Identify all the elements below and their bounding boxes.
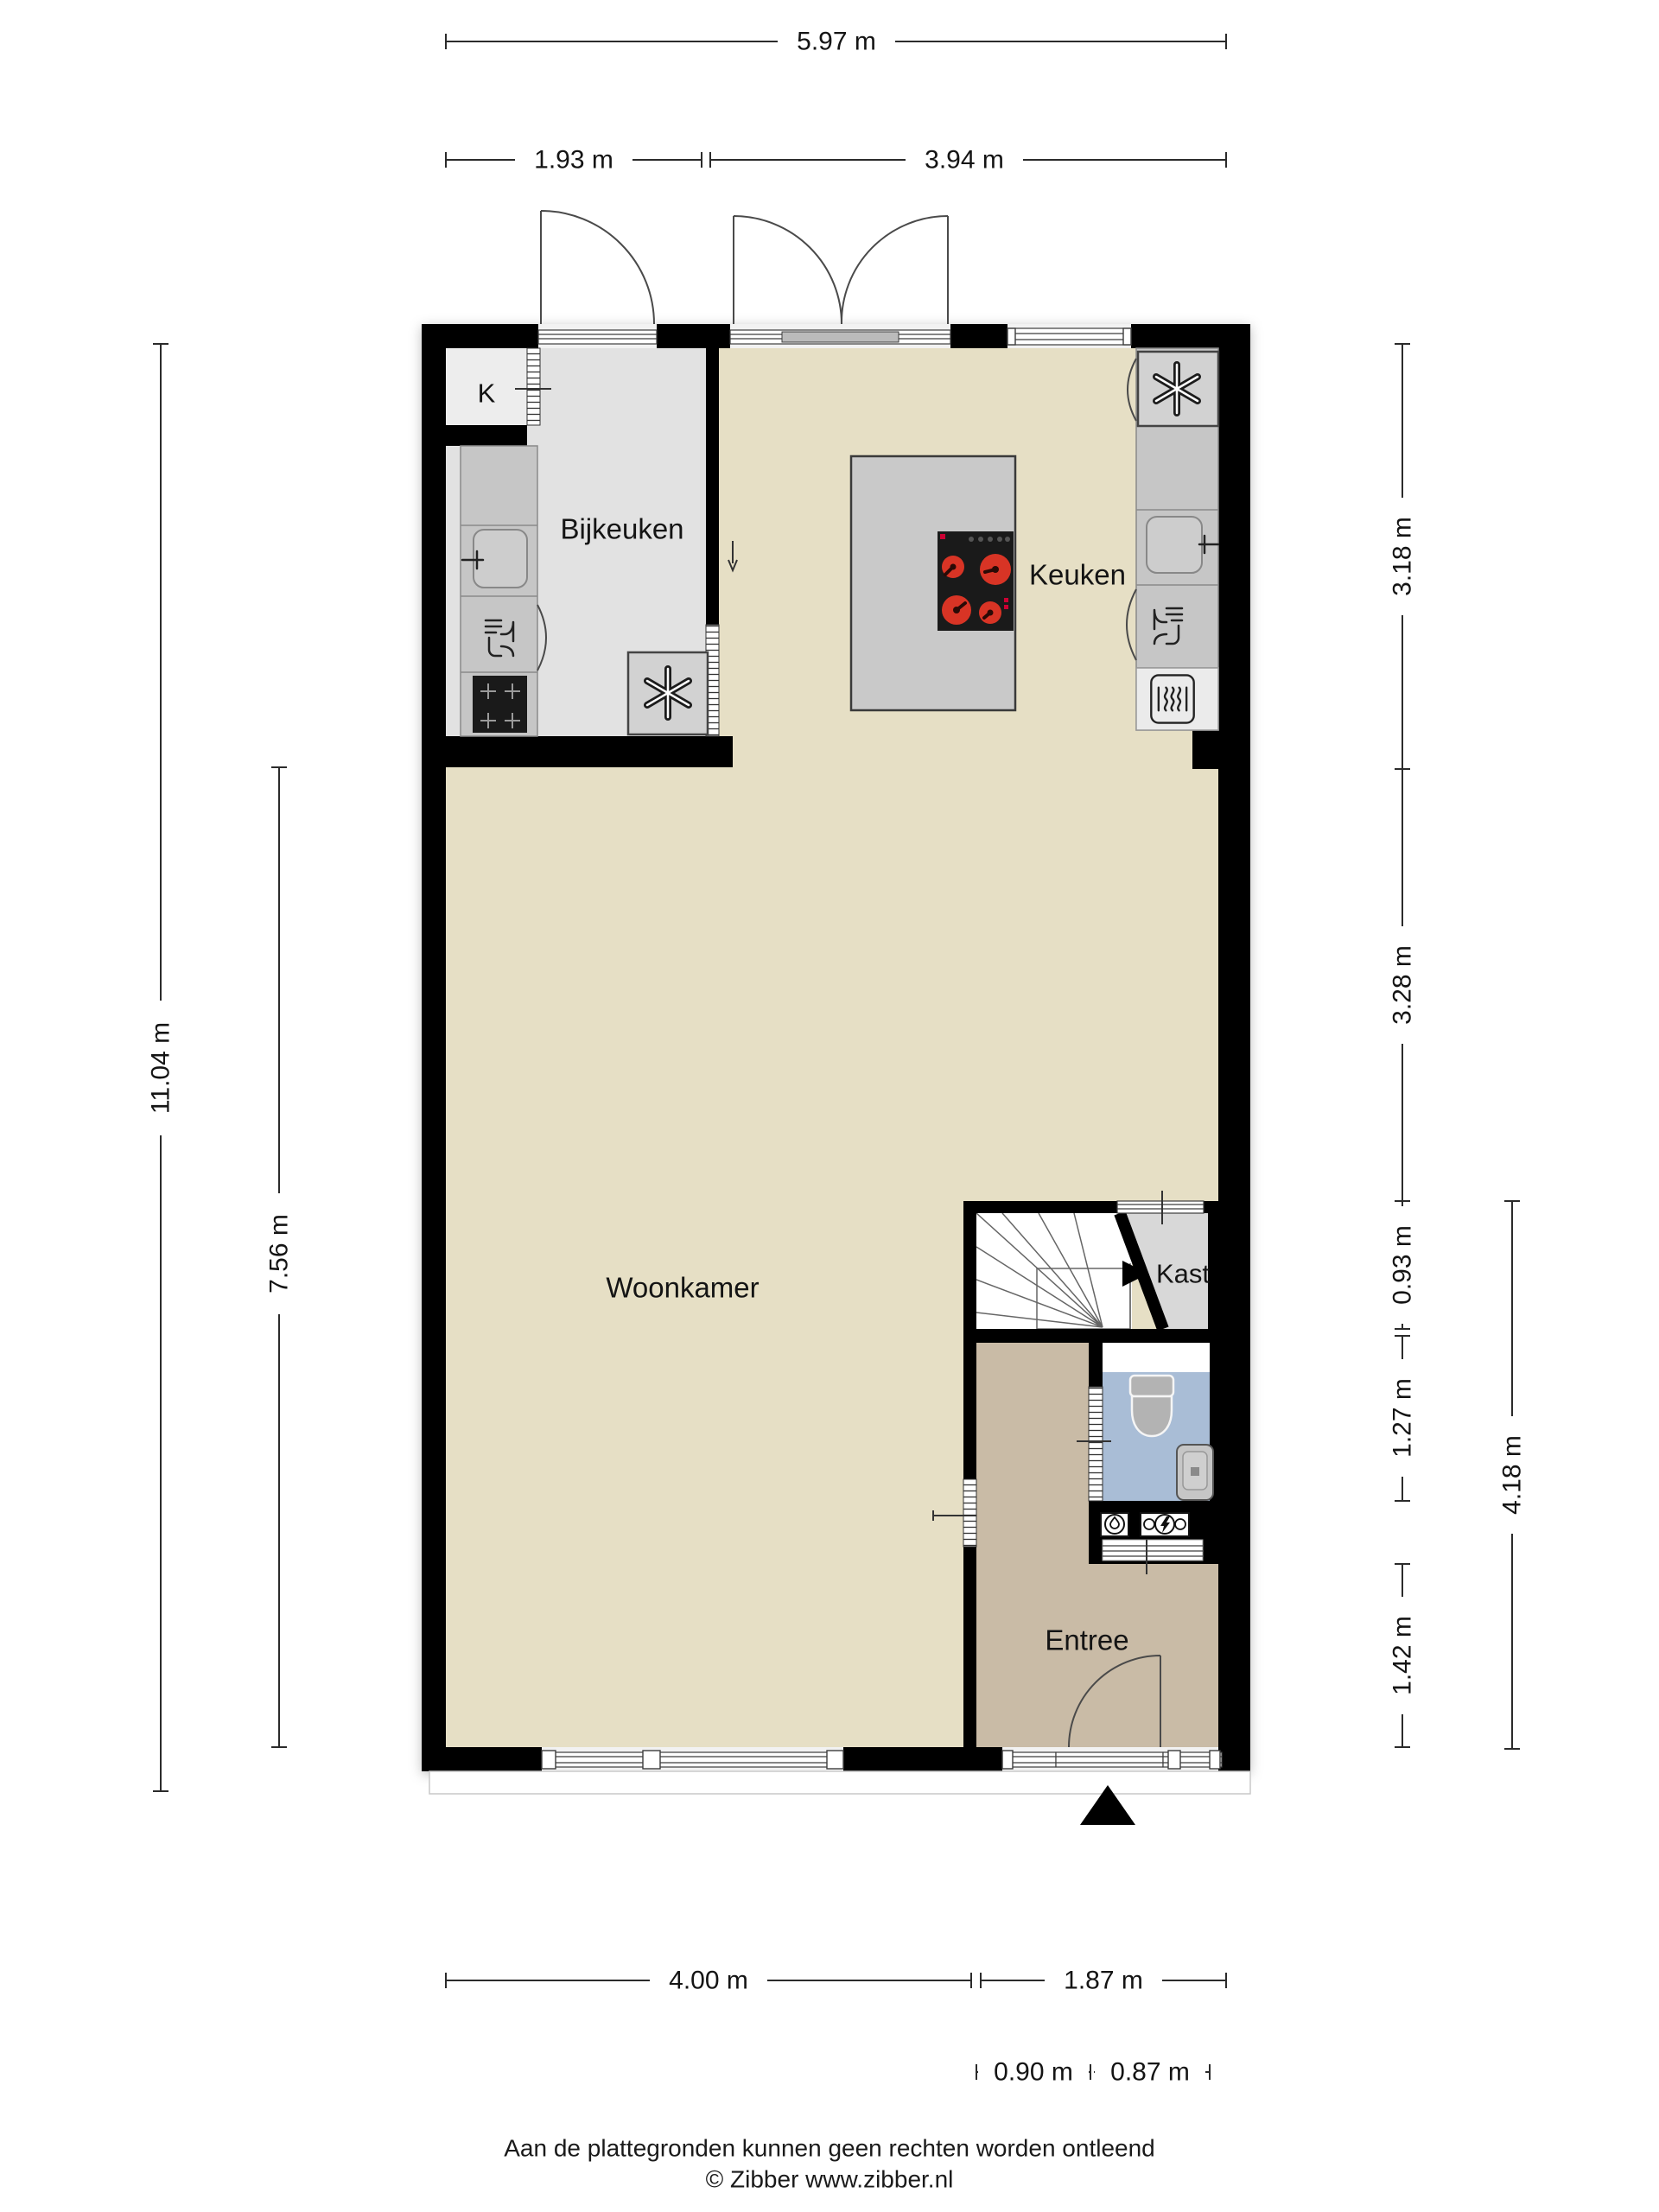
bottom-sidelight-right bbox=[1163, 1751, 1222, 1769]
svg-text:11.04 m: 11.04 m bbox=[147, 1022, 175, 1114]
svg-text:1.87 m: 1.87 m bbox=[1064, 1967, 1143, 1995]
dim-top-right: 3.94 m bbox=[710, 141, 1226, 179]
k-closet-door bbox=[527, 348, 540, 425]
oven-icon bbox=[1136, 668, 1218, 730]
dim-bottom-entree: 1.87 m bbox=[981, 1961, 1226, 1999]
dim-bottom-toilet: 0.87 m bbox=[1094, 2053, 1210, 2091]
bottom-sidelight-left bbox=[1002, 1751, 1056, 1769]
svg-text:3.18 m: 3.18 m bbox=[1389, 517, 1417, 596]
top-single-door-sill bbox=[538, 330, 657, 344]
room-label-keuken: Keuken bbox=[1029, 559, 1126, 591]
toilet-door bbox=[1089, 1387, 1103, 1501]
bijkeuken-sink-icon bbox=[474, 530, 527, 588]
bijkeuken-cooktop-icon bbox=[473, 676, 527, 733]
floor-stairs bbox=[976, 1213, 1132, 1329]
footer: Aan de plattegronden kunnen geen rechten… bbox=[504, 2135, 1154, 2193]
dim-right-toilet: 1.27 m bbox=[1383, 1336, 1421, 1501]
dim-bottom-living: 4.00 m bbox=[446, 1961, 971, 1999]
washing-machine-icon bbox=[628, 652, 708, 734]
dim-top-total: 5.97 m bbox=[446, 22, 1226, 60]
front-door-threshold bbox=[1056, 1752, 1163, 1767]
svg-text:3.94 m: 3.94 m bbox=[925, 146, 1004, 175]
floor-toilet-hall bbox=[1103, 1343, 1210, 1372]
floorplan-page: K Bijkeuken Keuken Woonkamer Kast Entree… bbox=[0, 0, 1659, 2212]
svg-text:1.27 m: 1.27 m bbox=[1389, 1378, 1417, 1458]
extractor-fan-icon bbox=[1138, 352, 1218, 426]
top-double-door-sill bbox=[730, 330, 950, 344]
room-label-kast: Kast bbox=[1156, 1259, 1210, 1289]
washbasin-icon bbox=[1177, 1445, 1213, 1500]
dim-top-left: 1.93 m bbox=[446, 141, 702, 179]
svg-text:0.93 m: 0.93 m bbox=[1389, 1225, 1417, 1305]
toilet-icon bbox=[1130, 1376, 1173, 1436]
room-label-bijkeuken: Bijkeuken bbox=[560, 513, 683, 545]
kitchen-island bbox=[851, 456, 1015, 710]
floor-entree bbox=[976, 1343, 1089, 1747]
entree-door-opening bbox=[963, 1479, 976, 1547]
room-label-entree: Entree bbox=[1045, 1624, 1128, 1656]
svg-text:4.18 m: 4.18 m bbox=[1498, 1435, 1527, 1515]
dim-right-kitchen: 3.18 m bbox=[1383, 344, 1421, 769]
keuken-sink-icon bbox=[1147, 517, 1202, 573]
disclaimer-text: Aan de plattegronden kunnen geen rechten… bbox=[504, 2135, 1154, 2162]
room-label-k: K bbox=[478, 378, 496, 409]
water-meter-icon bbox=[1101, 1513, 1128, 1536]
dim-right-entree: 1.42 m bbox=[1383, 1564, 1421, 1747]
dim-right-living: 3.28 m bbox=[1383, 769, 1421, 1201]
dim-left-outer: 11.04 m bbox=[142, 344, 180, 1791]
dim-left-inner: 7.56 m bbox=[260, 767, 298, 1747]
svg-text:0.90 m: 0.90 m bbox=[994, 2058, 1073, 2087]
dim-right-kast: 0.93 m bbox=[1383, 1201, 1421, 1329]
dim-right-outer: 4.18 m bbox=[1493, 1201, 1531, 1749]
svg-text:7.56 m: 7.56 m bbox=[265, 1214, 294, 1294]
bottom-living-window bbox=[542, 1751, 843, 1769]
dim-bottom-hall: 0.90 m bbox=[976, 2053, 1090, 2091]
copyright-text: © Zibber www.zibber.nl bbox=[706, 2166, 954, 2193]
double-door-right-swing bbox=[842, 216, 948, 324]
garden-door-swing bbox=[541, 211, 654, 324]
svg-text:1.93 m: 1.93 m bbox=[534, 146, 613, 175]
bottom-sill-band bbox=[429, 1771, 1250, 1794]
floorplan-svg: K Bijkeuken Keuken Woonkamer Kast Entree… bbox=[0, 0, 1659, 2212]
electric-meter-icon bbox=[1141, 1513, 1189, 1536]
svg-text:4.00 m: 4.00 m bbox=[669, 1967, 748, 1995]
room-label-woonkamer: Woonkamer bbox=[606, 1272, 759, 1304]
svg-text:1.42 m: 1.42 m bbox=[1389, 1616, 1417, 1695]
svg-text:3.28 m: 3.28 m bbox=[1389, 945, 1417, 1025]
top-kitchen-window bbox=[1007, 328, 1131, 345]
svg-text:5.97 m: 5.97 m bbox=[797, 28, 876, 56]
svg-text:0.87 m: 0.87 m bbox=[1110, 2058, 1190, 2087]
double-door-left-swing bbox=[734, 216, 842, 324]
kast-window bbox=[1117, 1201, 1204, 1213]
